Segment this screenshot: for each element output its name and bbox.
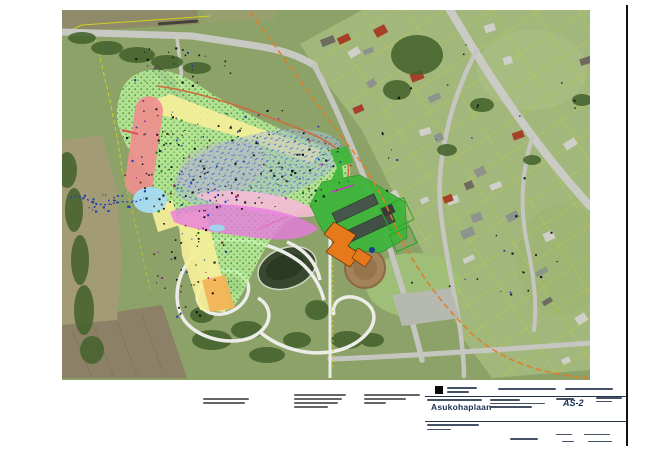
- header-right-lines: [498, 388, 556, 392]
- sheet-count-lines: [562, 431, 612, 449]
- footer-center-line: [510, 438, 538, 442]
- header-far-right-lines: [565, 388, 613, 392]
- project-title: Asukohaplaan: [431, 403, 492, 412]
- map-canvas: [62, 10, 590, 380]
- company-logo-icon: [435, 386, 443, 394]
- mid-cell-lines: [490, 399, 545, 410]
- code-right-lines: [596, 397, 622, 404]
- drawing-code: AS-2: [563, 399, 584, 408]
- title-block-divider-2: [425, 421, 626, 422]
- zone-light-blue: [133, 187, 167, 213]
- note-block-3: [364, 394, 420, 406]
- note-block-2: [294, 394, 346, 410]
- drawing-sheet: Asukohaplaan AS-2: [0, 0, 650, 459]
- aerial-map: [62, 10, 590, 380]
- note-block-1: [203, 398, 249, 406]
- lower-left-lines: [427, 424, 479, 432]
- sheet-frame-right: [626, 5, 628, 446]
- company-name-lines: [447, 387, 477, 395]
